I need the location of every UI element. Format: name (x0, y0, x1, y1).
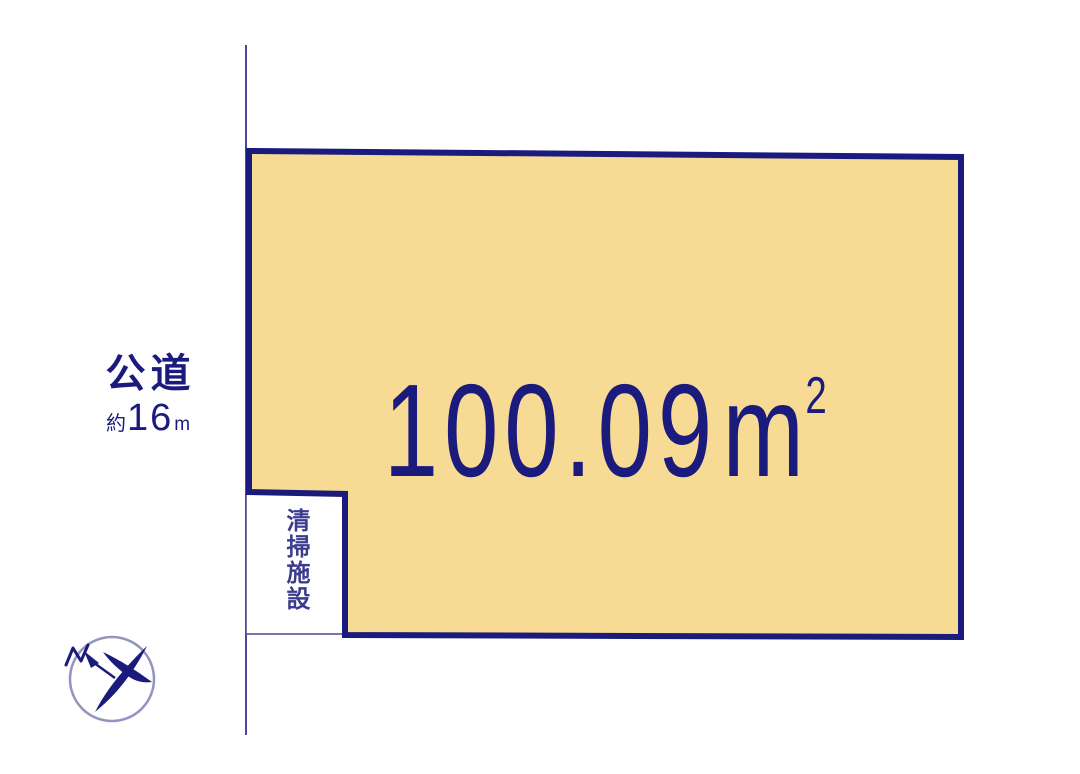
road-type-label: 公道 (86, 352, 210, 396)
area-unit: m (722, 357, 803, 504)
road-approx-prefix: 約 (106, 407, 126, 436)
plot-area-text: 100.09m2 (384, 330, 827, 497)
road-width-label: 約 16 m (86, 397, 210, 440)
area-unit-exponent: 2 (805, 367, 826, 425)
area-value: 100.09 (384, 357, 718, 504)
road-label: 公道 約 16 m (86, 352, 210, 440)
road-width-unit: m (174, 414, 190, 436)
plot-area-label: 100.09m2 (248, 330, 962, 538)
compass-north-icon (66, 637, 154, 721)
cleaning-facility-label: 清掃施設 (278, 508, 313, 612)
road-width-value: 16 (127, 397, 173, 440)
land-plot-diagram: 100.09m2 公道 約 16 m 清掃施設 (0, 0, 1080, 774)
